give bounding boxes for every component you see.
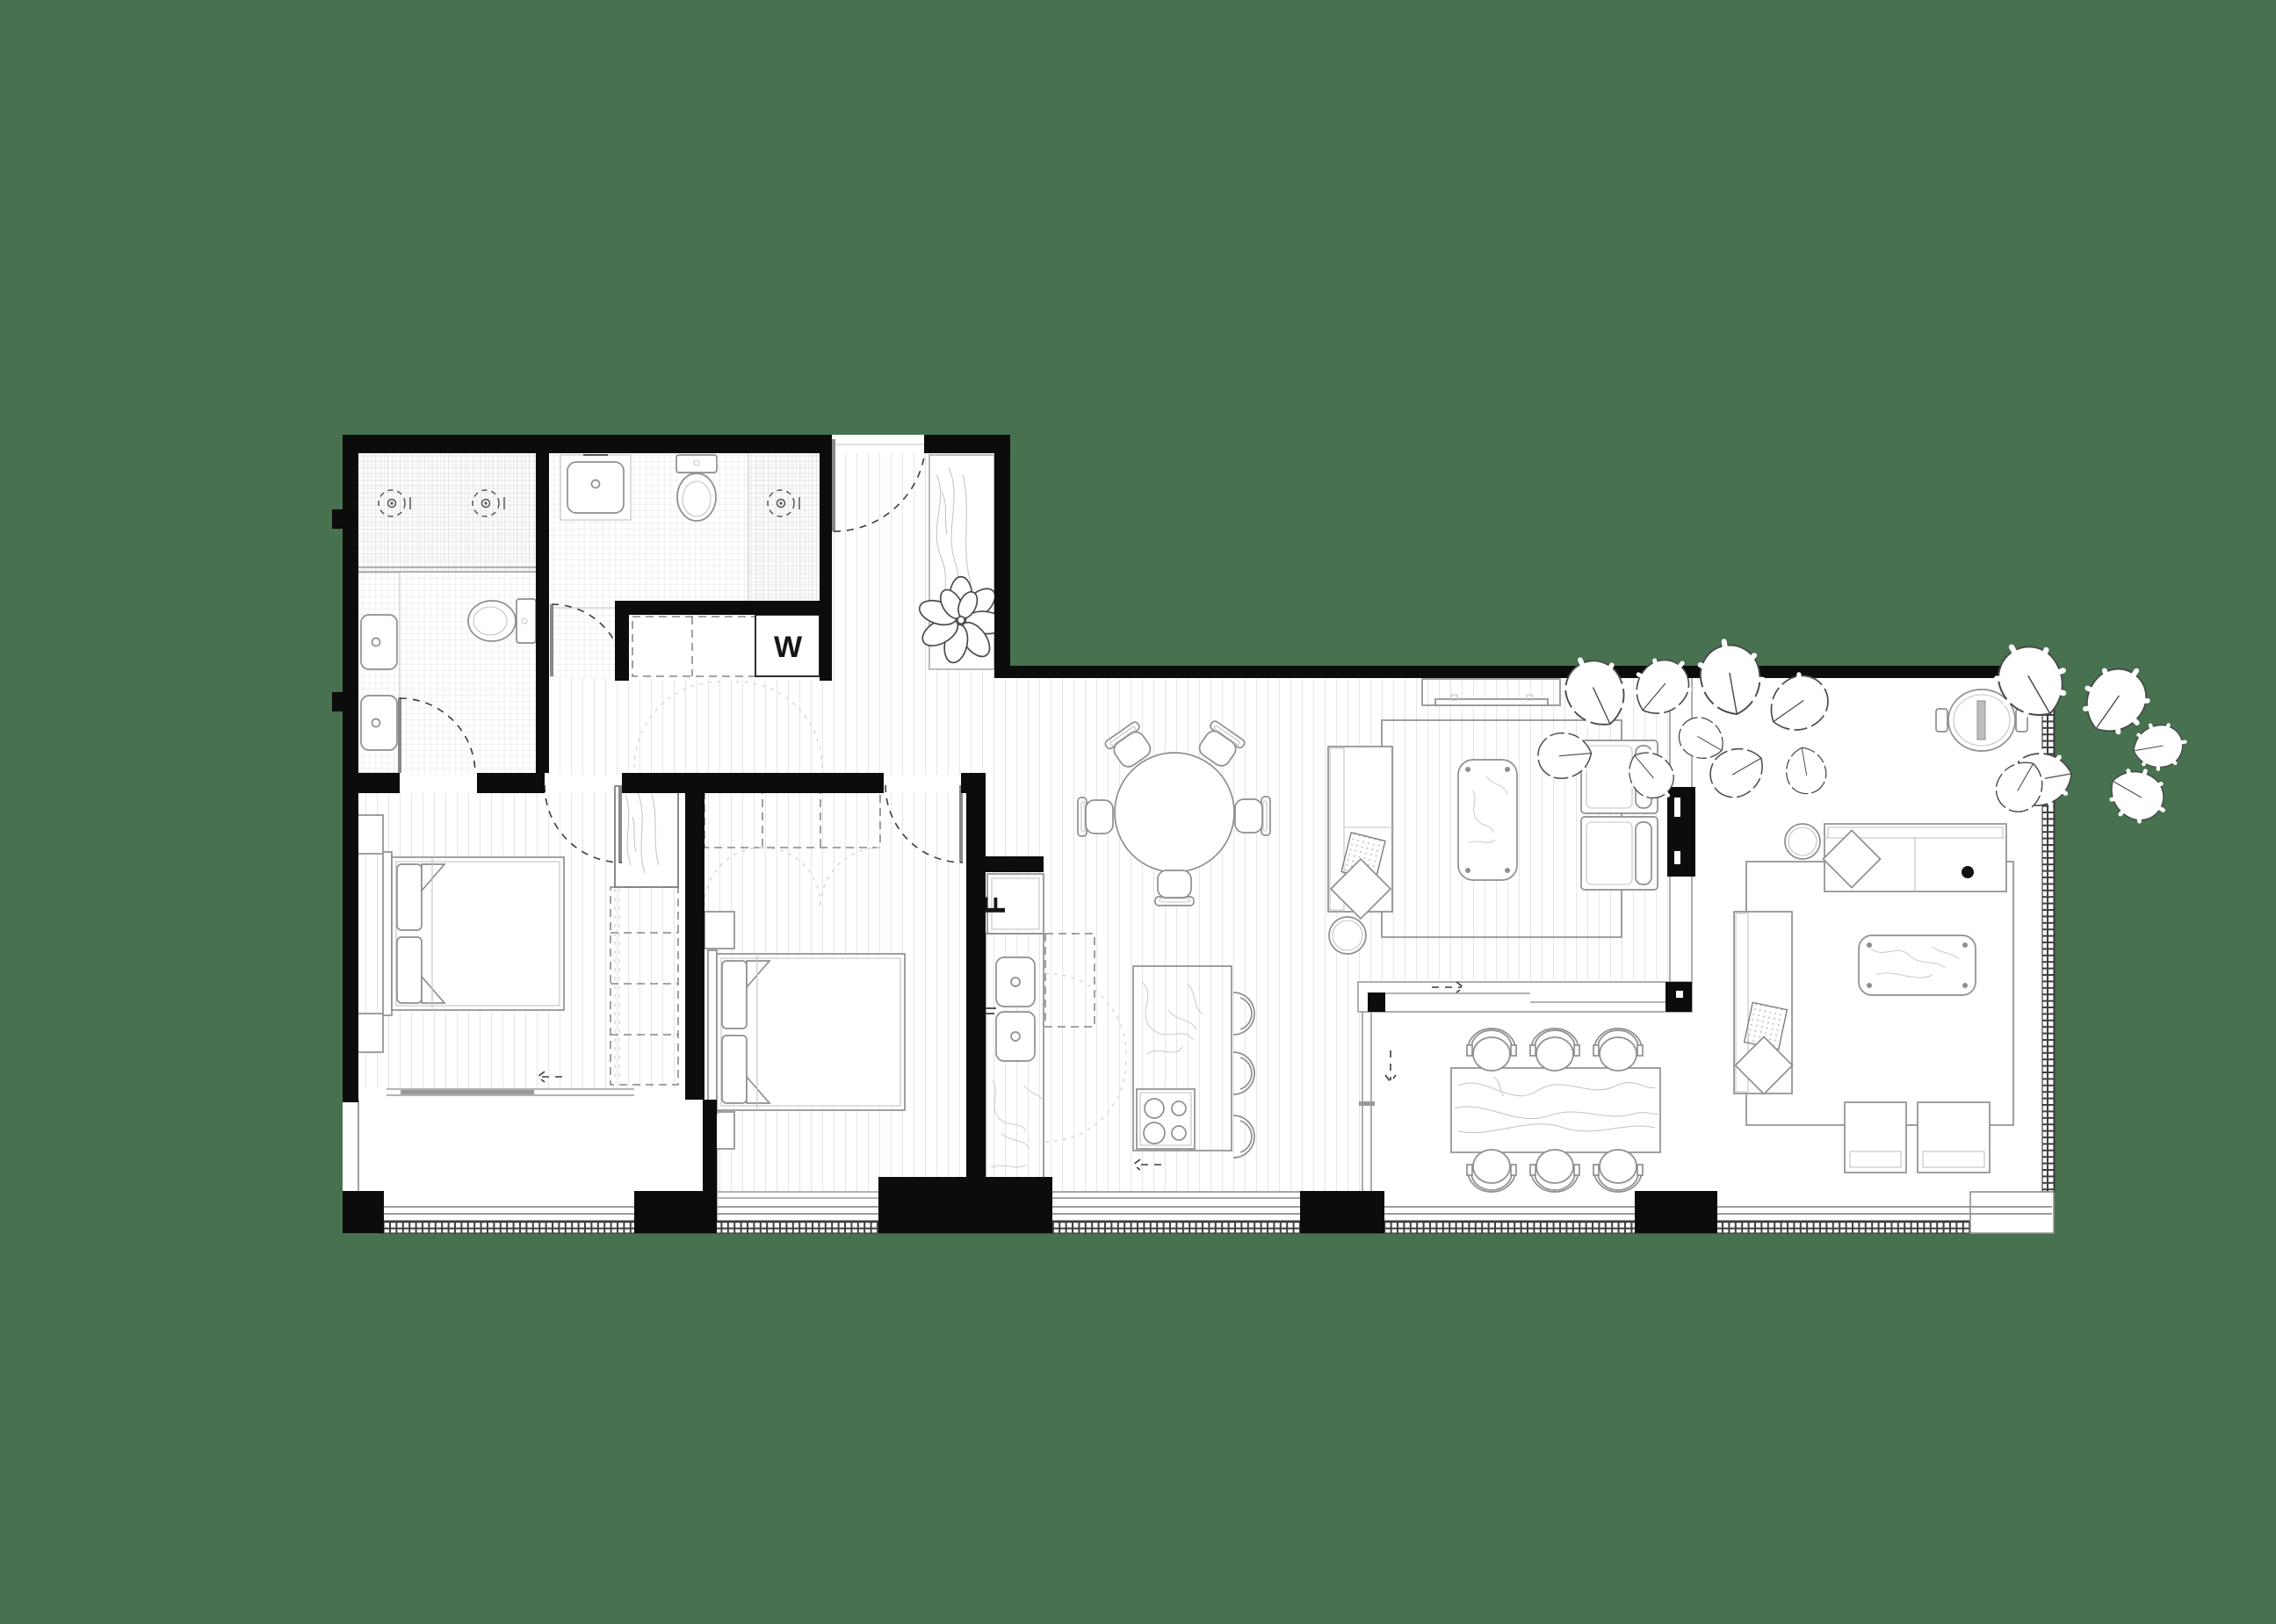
washer-label: W bbox=[774, 631, 803, 664]
cooktop bbox=[1137, 1089, 1195, 1149]
chaise-lounge bbox=[1328, 747, 1392, 919]
bedroom2-bed bbox=[708, 950, 905, 1114]
outdoor-side-table bbox=[1785, 824, 1820, 859]
dining-table bbox=[1115, 753, 1234, 872]
facade-pier bbox=[1300, 1191, 1384, 1233]
ensuite-toilet bbox=[468, 599, 536, 643]
fireplace-joinery bbox=[1667, 787, 1695, 877]
fridge: F bbox=[979, 874, 1044, 934]
bedroom2-door-leaf bbox=[959, 785, 963, 863]
floor-plan-drawing: W bbox=[0, 0, 2276, 1624]
terrace-grate-bottom bbox=[379, 1221, 1970, 1233]
outdoor-sofa bbox=[1823, 824, 2006, 891]
bathroom-vanity bbox=[560, 455, 631, 520]
bathroom-vestibule-floor bbox=[549, 608, 617, 680]
coffee-table bbox=[1458, 760, 1517, 880]
balcony-column bbox=[634, 1191, 717, 1233]
armchair-2 bbox=[1581, 817, 1658, 890]
ensuite-shower-floor bbox=[358, 453, 536, 571]
facade-pier bbox=[878, 1177, 1052, 1233]
facade-pier bbox=[1635, 1191, 1717, 1233]
bathroom-toilet bbox=[676, 455, 717, 521]
outdoor-dining bbox=[1451, 1029, 1660, 1192]
sofa-dot bbox=[1962, 866, 1974, 878]
bedside-table bbox=[704, 912, 734, 949]
side-table bbox=[1329, 917, 1366, 954]
terrace-corner-planter bbox=[1970, 1192, 2054, 1233]
bathroom-shower-floor bbox=[750, 453, 820, 608]
ottoman-1 bbox=[1845, 1102, 1906, 1173]
floor-plan-page: W bbox=[0, 0, 2276, 1624]
master-bed bbox=[383, 852, 564, 1015]
outdoor-chaise bbox=[1734, 912, 1793, 1094]
outdoor-coffee-table bbox=[1859, 935, 1976, 995]
terrace-grate-right bbox=[2042, 666, 2055, 1192]
bedroom-door-leaf bbox=[618, 785, 622, 863]
ottoman-2 bbox=[1918, 1102, 1990, 1173]
ensuite-door-leaf bbox=[398, 697, 401, 773]
bathroom-door-leaf bbox=[550, 604, 553, 676]
slider-zone bbox=[1358, 980, 1702, 1014]
balcony-column bbox=[343, 1191, 384, 1233]
hallway-floor bbox=[545, 678, 994, 775]
corner-pier bbox=[1665, 982, 1692, 1012]
